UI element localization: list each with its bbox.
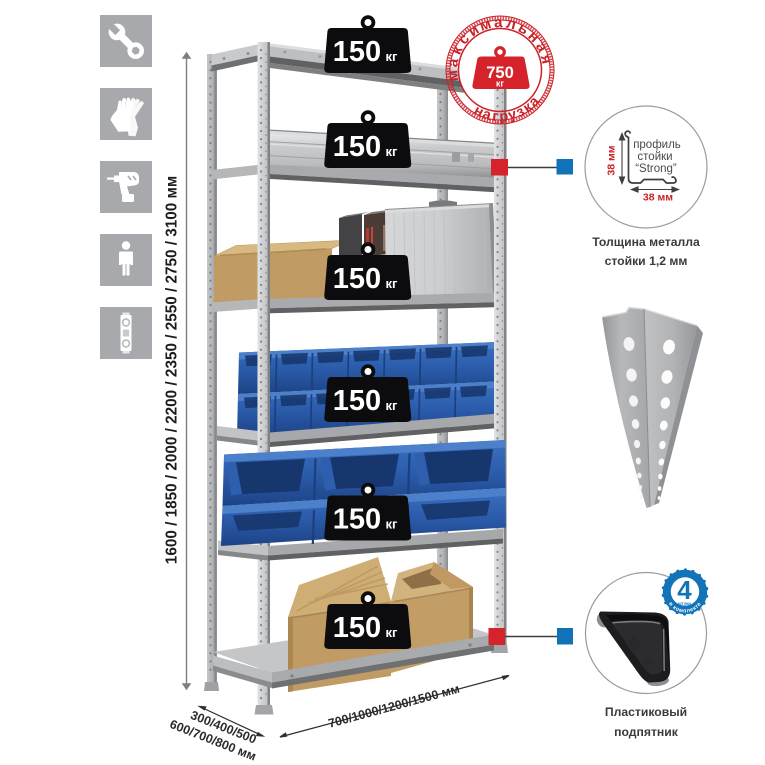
svg-text:кг: кг: [386, 625, 399, 640]
svg-text:1600 / 1850 / 2000 / 2200 / 23: 1600 / 1850 / 2000 / 2200 / 2350 / 2550 …: [164, 176, 181, 564]
svg-text:стойки 1,2 мм: стойки 1,2 мм: [605, 254, 688, 268]
svg-text:38 мм: 38 мм: [643, 192, 673, 204]
svg-text:а: а: [494, 14, 504, 31]
svg-text:кг: кг: [386, 276, 399, 291]
svg-text:кг: кг: [386, 49, 399, 64]
svg-text:кг: кг: [386, 517, 399, 532]
svg-text:стойки: стойки: [637, 151, 672, 163]
svg-text:кг: кг: [496, 79, 505, 89]
svg-text:150: 150: [333, 504, 381, 536]
svg-text:38 мм: 38 мм: [606, 145, 618, 175]
svg-text:кг: кг: [386, 144, 399, 159]
svg-text:150: 150: [333, 385, 381, 417]
svg-text:Пластиковый: Пластиковый: [605, 705, 687, 719]
svg-text:150: 150: [333, 36, 381, 68]
svg-text:Толщина металла: Толщина металла: [592, 235, 700, 249]
svg-text:м: м: [444, 69, 462, 82]
svg-text:150: 150: [333, 263, 381, 295]
svg-text:150: 150: [333, 131, 381, 163]
svg-text:подпятник: подпятник: [614, 725, 679, 739]
svg-text:“Strong”: “Strong”: [635, 163, 677, 175]
svg-text:профиль: профиль: [633, 139, 681, 151]
svg-text:150: 150: [333, 612, 381, 644]
svg-text:кг: кг: [386, 398, 399, 413]
svg-text:штуки: штуки: [678, 601, 691, 606]
